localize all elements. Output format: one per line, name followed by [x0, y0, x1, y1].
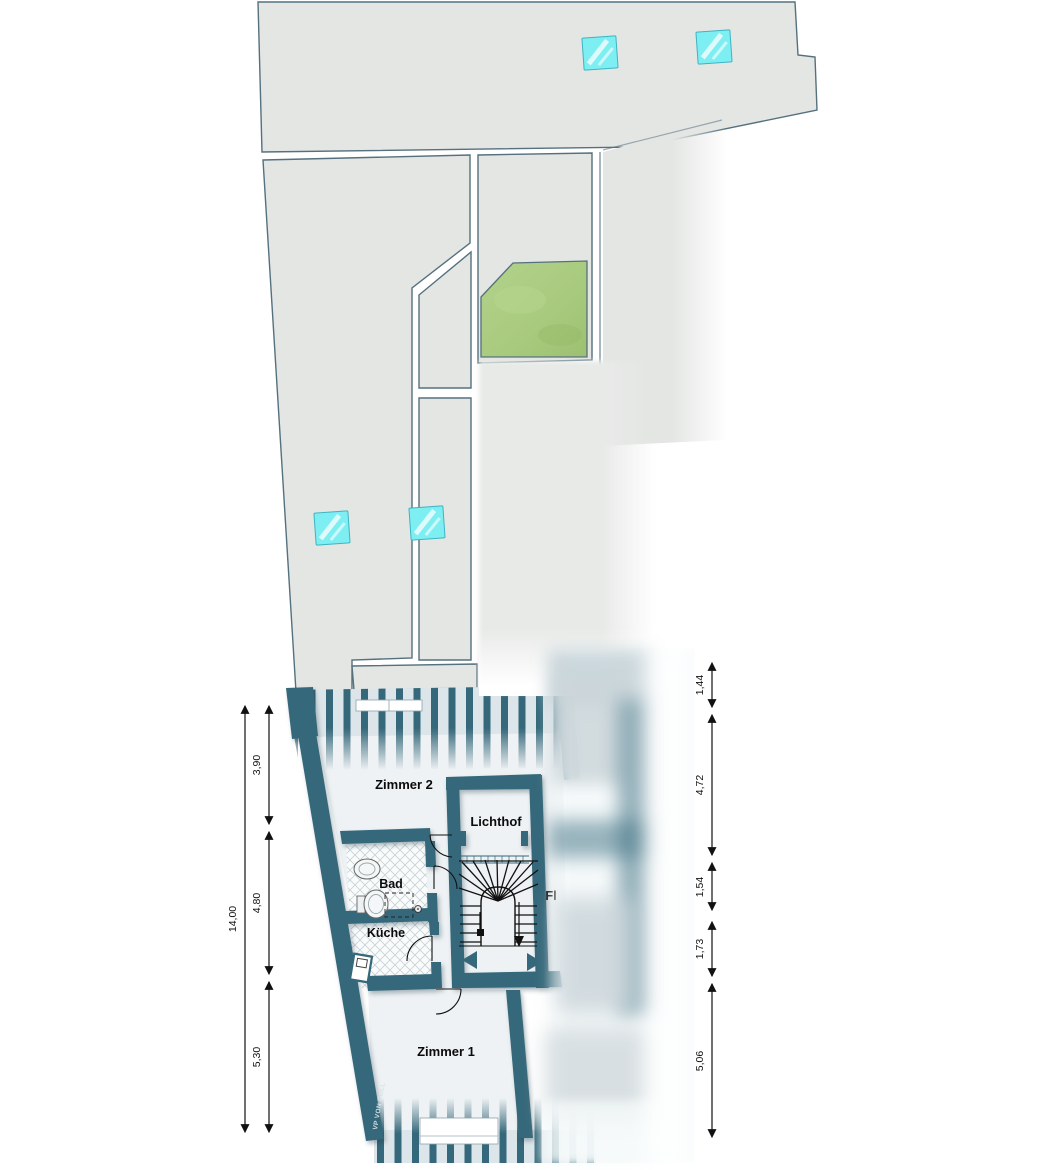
room-label-kueche: Küche: [367, 926, 405, 940]
parcel-right-fading: [603, 119, 725, 446]
room-label-lichthof: Lichthof: [470, 814, 522, 829]
sink-icon: [354, 859, 380, 879]
wall-lichthof-stub-right: [521, 831, 528, 846]
floorplan-page: { "plan": { "labels": { "zimmer2": "Zimm…: [0, 0, 1060, 1163]
room-label-zimmer1: Zimmer 1: [417, 1044, 475, 1059]
wall-hall-bottom-left: [366, 974, 436, 991]
room-label-flur: Fl: [545, 888, 557, 903]
wall-bad-corridor-lower: [427, 893, 438, 922]
skylight-icon: [409, 506, 445, 540]
wall-top-left-corner: [286, 687, 318, 739]
wall-kueche-corridor-upper: [429, 922, 439, 935]
parcel-roof-top: [258, 2, 817, 152]
room-label-zimmer2: Zimmer 2: [375, 777, 433, 792]
bottom-window-sill: [420, 1118, 498, 1144]
room-label-bad: Bad: [379, 877, 403, 891]
lawn-texture: [538, 324, 582, 346]
lawn-texture: [494, 286, 546, 314]
skylight-icon: [696, 30, 732, 64]
parcel-small: [352, 664, 477, 690]
stair-direction-start: [477, 929, 484, 936]
wall-hall-bottom-right: [462, 971, 562, 988]
skylight-icon: [314, 511, 350, 545]
wall-bad-corridor-upper: [425, 841, 436, 867]
top-window-band-stripes: [286, 686, 562, 770]
wall-lichthof-stub-left: [459, 831, 466, 846]
left-wall-window-icon: [350, 954, 372, 983]
skylight-icon: [582, 36, 618, 70]
site-and-floor-plan: Zimmer 2 Lichthof Bad Küche Zimmer 1 Fl …: [0, 0, 1060, 1163]
